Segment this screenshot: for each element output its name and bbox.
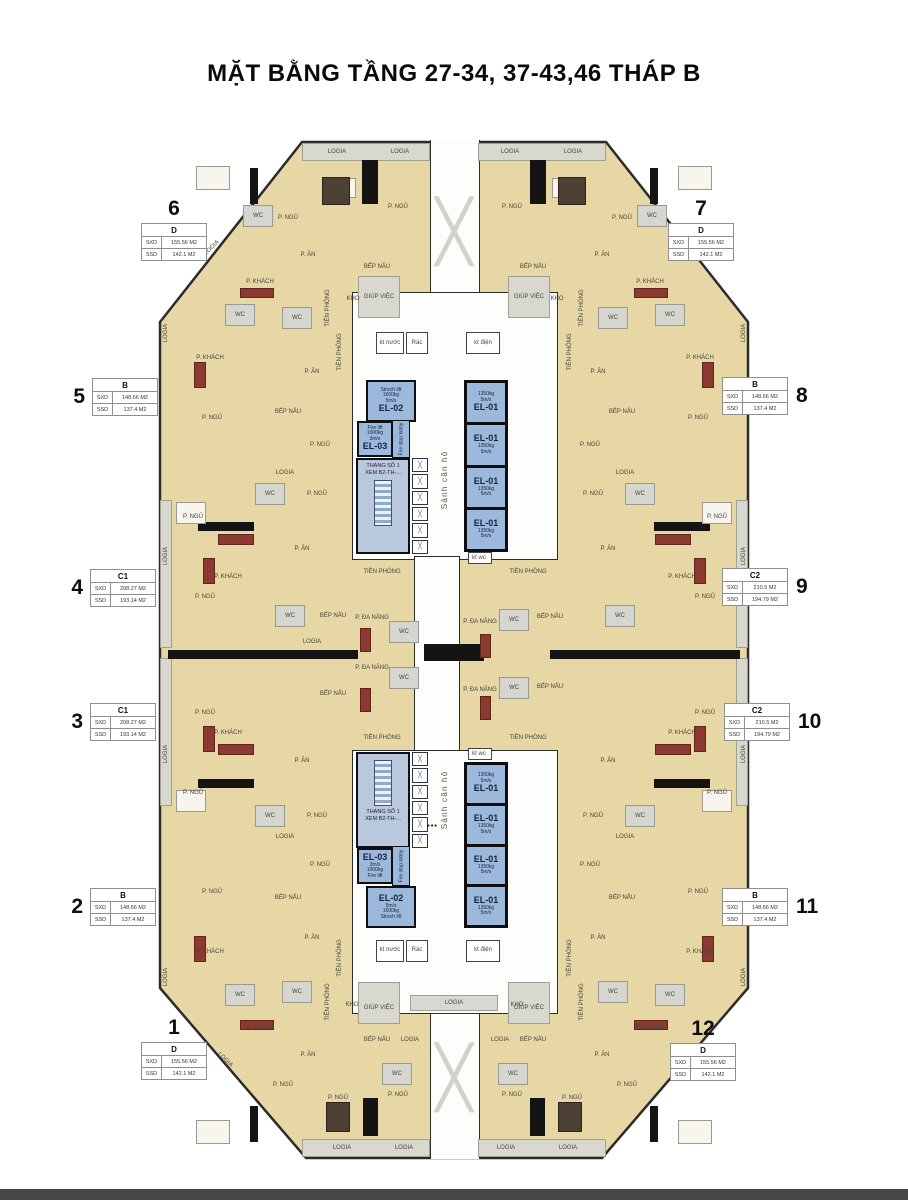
shaft-box: ╳ [412,474,428,488]
room-label: P. KHÁCH [636,279,664,285]
unit-11: 11BSXD148.66 M2SSD137.4 M2 [722,888,788,926]
stair-steps [374,760,392,806]
elevator-el02: EL-02 5m/s 1600kg Strech lift [366,886,416,928]
room-label: P. NGỦ [562,1095,582,1101]
room-label: P. KHÁCH [246,1025,274,1031]
room-label: WC [608,989,618,995]
furniture-sofa [702,362,714,388]
elevator-el01-cell: 1350kg5m/sEL-01 [467,383,505,422]
room-label: WC [235,312,245,318]
elevator-el01-cell: EL-011350kg5m/s [467,468,505,507]
unit-number: 11 [796,896,818,917]
room-label: TIỀN PHÒNG [325,983,331,1020]
unit-number: 4 [71,577,83,598]
fire-stop-lobby: Fire stop lobby [392,846,410,886]
unit-area-table: BSXD148.66 M2SSD137.4 M2 [722,888,788,926]
room-label: P. NGỦ [278,215,298,221]
furniture-bed [176,502,206,524]
room-label: P. NGỦ [202,889,222,895]
room-label: P. NGỦ [328,1095,348,1101]
room-label: WC [635,491,645,497]
room-label: P. ĂN [305,935,320,941]
room-label: P. ĐA NĂNG [355,665,389,671]
unit-1: 1DSXD155.56 M2SSD142.1 M2 [141,1042,207,1080]
room-label: WC [509,617,519,623]
room-label: P. ĐA NĂNG [463,619,497,625]
room-label: P. NGỦ [388,204,408,210]
room-label: BẾP NẤU [320,691,346,697]
furniture-bed [196,1120,230,1144]
shaft-box: ╳ [412,540,428,554]
room-label: WC [285,613,295,619]
room-label: P. ĂN [595,252,610,258]
unit-area-table: DSXD155.56 M2SSD142.1 M2 [141,1042,207,1080]
furniture-sofa [203,726,215,752]
room-label: P. NGỦ [502,204,522,210]
room-label: P. ĂN [601,546,616,552]
gray-zone [358,982,400,1024]
unit-area-table: DSXD155.56 M2SSD142.1 M2 [670,1043,736,1081]
room-label: WC [265,813,275,819]
room-label: TIỀN PHÒNG [567,939,573,976]
dots-glyph: ... [427,815,438,830]
room-label: WC [608,315,618,321]
gray-zone [160,500,172,648]
unit-area-table: C2SXD210.5 M2SSD194.79 M2 [722,568,788,606]
room-label: LOGIA [741,324,747,342]
room-label: LOGIA [741,745,747,763]
unit-number: 2 [71,896,83,917]
wall [198,522,254,531]
room-label: WC [265,491,275,497]
room-label: TIỀN PHÒNG [567,333,573,370]
room-label: P. KHÁCH [686,949,714,955]
room-label: P. NGỦ [707,790,727,796]
room-label: P. KHÁCH [246,279,274,285]
room-label: kt nước [380,947,401,953]
furniture-dark [558,177,586,205]
room-label: P. NGỦ [307,491,327,497]
unit-number: 1 [168,1017,180,1038]
unit-8: 8BSXD148.66 M2SSD137.4 M2 [722,377,788,415]
room-label: P. ĐA NĂNG [463,687,497,693]
room-label: BẾP NẤU [520,264,546,270]
footer-strip [0,1189,908,1200]
room-label: LOGIA [395,1145,413,1151]
unit-4: 4C1SXD208.27 M2SSD193.14 M2 [90,569,156,607]
room-label: WC [635,813,645,819]
wall [550,650,740,659]
room-label: P. NGỦ [195,594,215,600]
room-label: TIỀN PHÒNG [325,289,331,326]
room-label: LOGIA [276,470,294,476]
furniture-dark [558,1102,582,1132]
room-label: TIỀN PHÒNG [337,333,343,370]
unit-area-table: C1SXD208.27 M2SSD193.14 M2 [90,703,156,741]
room-label: WC [399,675,409,681]
room-label: P. ĂN [295,546,310,552]
room-label: LOGIA [333,1145,351,1151]
room-label: LOGIA [497,1145,515,1151]
room-label: WC [615,613,625,619]
room-label: P. NGỦ [195,710,215,716]
room-label: LOGIA [501,149,519,155]
room-label: BẾP NẤU [364,1037,390,1043]
room-label: LOGIA [445,1000,463,1006]
shaft-box: ╳ [412,507,428,521]
shaft-box: ╳ [412,458,428,472]
room-label: LOGIA [328,149,346,155]
room-label: WC [235,992,245,998]
room-label: BẾP NẤU [364,264,390,270]
room-label: LOGIA [391,149,409,155]
unit-area-table: C1SXD208.27 M2SSD193.14 M2 [90,569,156,607]
furniture-sofa [218,744,254,755]
furniture-sofa [194,362,206,388]
furniture-sofa [360,688,371,712]
room-label: LOGIA [616,834,634,840]
shaft-box: ╳ [412,491,428,505]
furniture-bed [678,166,712,190]
room-label: KHO [346,296,359,302]
unit-number: 6 [168,198,180,219]
unit-number: 7 [695,198,707,219]
unit-number: 8 [796,385,808,406]
room-label: GIÚP VIỆC [514,1005,544,1011]
unit-10: 10C2SXD210.5 M2SSD194.79 M2 [724,703,790,741]
room-label: kt nước [380,340,401,346]
room-label: P. NGỦ [310,442,330,448]
unit-number: 12 [691,1018,714,1039]
gray-zone [302,143,430,161]
wall [250,168,258,204]
room-label: LOGIA [163,324,169,342]
room-label: KHO [345,1002,358,1008]
room-label: P. NGỦ [583,491,603,497]
room-label: GIÚP VIỆC [514,294,544,300]
room-label: Rác [412,947,423,953]
staircase: THANG SỐ 1 XEM B2-TH-... [356,752,410,848]
room-label: BẾP NẤU [520,1037,546,1043]
room-label: TIỀN PHÒNG [509,735,546,741]
room-label: P. ĂN [591,935,606,941]
shaft-column: ╳╳╳╳╳╳ [412,752,428,848]
furniture-sofa [480,696,491,720]
wall [424,644,484,661]
room-label: LOGIA [303,639,321,645]
furniture-bed [678,1120,712,1144]
wall [250,1106,258,1142]
room-label: LOGIA [276,834,294,840]
room-label: BẾP NẤU [275,895,301,901]
room-label: TIỀN PHÒNG [363,735,400,741]
room-label: KHO [550,296,563,302]
room-label: P. ĂN [595,1052,610,1058]
room-label: WC [647,213,657,219]
room-label: WC [292,315,302,321]
wall [530,1098,545,1136]
unit-area-table: DSXD155.56 M2SSD142.1 M2 [668,223,734,261]
shaft-box: ╳ [412,785,428,799]
room-label: LOGIA [163,968,169,986]
room-label: P. NGỦ [617,1082,637,1088]
brace-glyph: ╳ [436,1043,472,1113]
room-label: LOGIA [491,1037,509,1043]
room-label: P. NGỦ [502,1092,522,1098]
room-label: P. NGỦ [580,862,600,868]
furniture-sofa [240,288,274,298]
elevator-el01-cell: 1350kg5m/sEL-01 [467,765,505,803]
room-label: WC [399,629,409,635]
unit-area-table: C2SXD210.5 M2SSD194.79 M2 [724,703,790,741]
room-label: kt điện [474,340,492,346]
wall [530,160,546,204]
elevator-bank-el01: 1350kg5m/sEL-01EL-011350kg5m/sEL-011350k… [464,762,508,928]
elevator-el03: EL-03 3m/s 1000kg Fire lift [357,848,393,884]
room-label: WC [392,1071,402,1077]
room-label: P. ĂN [301,252,316,258]
room-label: P. NGỦ [183,514,203,520]
elevator-el03: Fire lift 1000kg 3m/s EL-03 [357,421,393,457]
room-label: P. ĐA NĂNG [355,615,389,621]
furniture-bed [702,502,732,524]
room-label: WC [665,992,675,998]
unit-area-table: BSXD148.66 M2SSD137.4 M2 [90,888,156,926]
brace-glyph: ╳ [436,197,472,267]
room-label: WC [509,685,519,691]
room-label: LOGIA [616,470,634,476]
wall [650,168,658,204]
unit-2: 2BSXD148.66 M2SSD137.4 M2 [90,888,156,926]
wall [198,779,254,788]
unit-9: 9C2SXD210.5 M2SSD194.79 M2 [722,568,788,606]
shaft-box: ╳ [412,834,428,848]
elevator-bank-el01: 1350kg5m/sEL-01EL-011350kg5m/sEL-011350k… [464,380,508,552]
room-label: kt wc [472,751,486,757]
shaft-box: ╳ [412,768,428,782]
elevator-el02: Strech lift 1600kg 5m/s EL-02 [366,380,416,422]
room-label: kt điện [474,947,492,953]
room-label: BẾP NẤU [537,614,563,620]
corridor-label: Sảnh căn hộ [439,771,449,830]
room-label: P. KHÁCH [668,730,696,736]
unit-area-table: BSXD148.66 M2SSD137.4 M2 [722,377,788,415]
elevator-el01-cell: EL-011350kg5m/s [467,847,505,885]
room-label: LOGIA [741,968,747,986]
room-label: BẾP NẤU [275,409,301,415]
room-label: GIÚP VIỆC [364,294,394,300]
room-label: P. NGỦ [688,889,708,895]
elevator-el01-cell: EL-011350kg5m/s [467,887,505,925]
room-label: Rác [412,340,423,346]
shaft-box: ╳ [412,752,428,766]
room-label: P. NGỦ [388,1092,408,1098]
room-label: WC [508,1071,518,1077]
furniture-sofa [655,744,691,755]
room-label: P. NGỦ [707,514,727,520]
room-label: P. NGỦ [580,442,600,448]
room-label: TIỀN PHÒNG [337,939,343,976]
room-label: P. ĂN [305,369,320,375]
furniture-bed [196,166,230,190]
room-label: P. ĂN [591,369,606,375]
room-label: LOGIA [741,547,747,565]
room-label: TIỀN PHÒNG [579,983,585,1020]
unit-12: 12DSXD155.56 M2SSD142.1 M2 [670,1043,736,1081]
room-label: P. NGỦ [307,813,327,819]
room-label: LOGIA [564,149,582,155]
furniture-sofa [655,534,691,545]
room-label: TIỀN PHÒNG [363,569,400,575]
unit-number: 10 [798,711,821,732]
room-label: P. NGỦ [202,415,222,421]
unit-area-table: BSXD148.66 M2SSD137.4 M2 [92,378,158,416]
stair-steps [374,480,392,526]
unit-6: 6DSXD155.56 M2SSD142.1 M2 [141,223,207,261]
room-label: P. NGỦ [310,862,330,868]
room-label: P. NGỦ [183,790,203,796]
wall [363,1098,378,1136]
furniture-sofa [480,634,491,658]
furniture-sofa [634,288,668,298]
room-label: P. NGỦ [583,813,603,819]
furniture-dark [322,177,350,205]
wall [362,160,378,204]
furniture-sofa [360,628,371,652]
floor-plan-page: MẶT BẰNG TẦNG 27-34, 37-43,46 THÁP B ╳ ╳… [0,0,908,1200]
room-label: BẾP NẤU [537,684,563,690]
room-label: kt wc [472,555,486,561]
furniture-sofa [218,534,254,545]
wall [650,1106,658,1142]
staircase: THANG SỐ 1 XEM B2-TH-... [356,458,410,554]
shaft-box: ╳ [412,801,428,815]
furniture-sofa [694,558,706,584]
room-label: P. NGỦ [273,1082,293,1088]
room-label: P. ĂN [601,758,616,764]
furniture-sofa [203,558,215,584]
room-label: LOGIA [163,547,169,565]
room-label: P. ĂN [295,758,310,764]
unit-3: 3C1SXD208.27 M2SSD193.14 M2 [90,703,156,741]
room-label: BẾP NẤU [320,613,346,619]
wall [654,779,710,788]
floor-plan: ╳ ╳ Strech lift 1600kg 5m/s EL-02 Fire l… [0,0,908,1200]
room-label: WC [292,989,302,995]
room-label: P. KHÁCH [196,949,224,955]
room-label: P. KHÁCH [214,730,242,736]
room-label: WC [665,312,675,318]
gray-zone [160,658,172,806]
room-label: P. KHÁCH [636,1025,664,1031]
room-label: WC [253,213,263,219]
room-label: P. KHÁCH [214,574,242,580]
room-label: P. KHÁCH [196,355,224,361]
unit-area-table: DSXD155.56 M2SSD142.1 M2 [141,223,207,261]
room-label: GIÚP VIỆC [364,1005,394,1011]
elevator-el01-cell: EL-011350kg5m/s [467,425,505,464]
shaft-column: ╳╳╳╳╳╳ [412,458,428,554]
room-label: P. NGỦ [695,594,715,600]
wall [168,650,358,659]
room-label: LOGIA [559,1145,577,1151]
furniture-dark [326,1102,350,1132]
room-label: LOGIA [163,745,169,763]
room-label: P. NGỦ [612,215,632,221]
unit-7: 7DSXD155.56 M2SSD142.1 M2 [668,223,734,261]
unit-number: 9 [796,576,808,597]
corridor-label: Sảnh căn hộ [439,451,449,510]
room-label: P. NGỦ [688,415,708,421]
room-label: TIỀN PHÒNG [509,569,546,575]
gray-zone [478,143,606,161]
elevator-el01-cell: EL-011350kg5m/s [467,510,505,549]
room-label: BẾP NẤU [609,895,635,901]
unit-number: 5 [73,386,85,407]
elevator-el01-cell: EL-011350kg5m/s [467,806,505,844]
unit-5: 5BSXD148.66 M2SSD137.4 M2 [92,378,158,416]
room-label: P. KHÁCH [686,355,714,361]
room-label: BẾP NẤU [609,409,635,415]
room-label: P. NGỦ [695,710,715,716]
unit-number: 3 [71,711,83,732]
room-label: P. KHÁCH [668,574,696,580]
room-label: LOGIA [401,1037,419,1043]
fire-stop-lobby: Fire stop lobby [392,420,410,458]
shaft-box: ╳ [412,523,428,537]
room-label: P. ĂN [301,1052,316,1058]
room-label: TIỀN PHÒNG [579,289,585,326]
